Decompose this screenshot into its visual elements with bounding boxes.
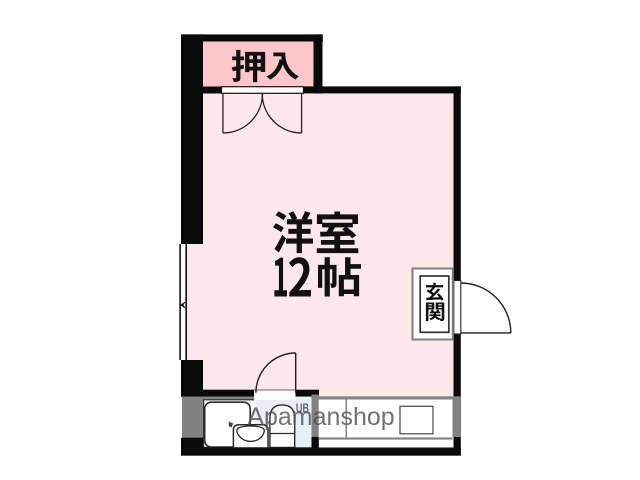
svg-text:Apamanshop: Apamanshop — [247, 403, 394, 431]
